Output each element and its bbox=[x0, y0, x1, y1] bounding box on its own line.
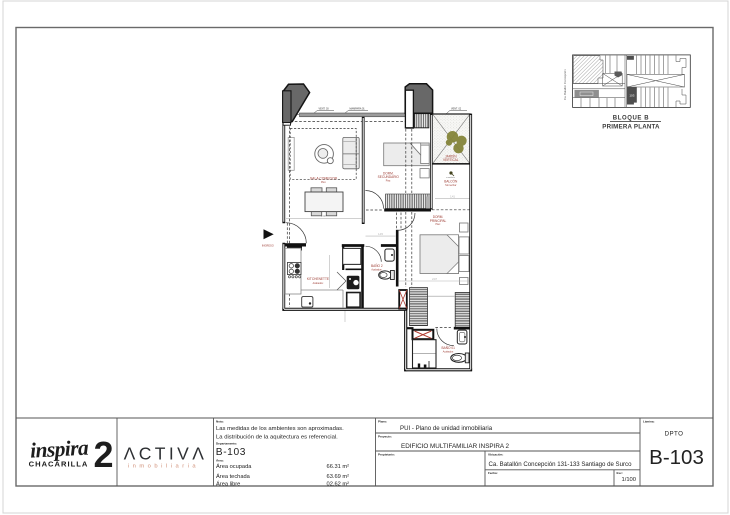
svg-text:Fecha:: Fecha: bbox=[488, 471, 498, 475]
svg-text:INGRESO: INGRESO bbox=[262, 244, 274, 248]
svg-text:Ca. Batallón Concepción: Ca. Batallón Concepción bbox=[563, 69, 567, 100]
svg-text:Proyecto:: Proyecto: bbox=[378, 435, 392, 439]
svg-text:VENT. 02: VENT. 02 bbox=[451, 108, 462, 111]
svg-text:VENT. 03: VENT. 03 bbox=[319, 108, 330, 111]
svg-text:Las medidas de los ambientes s: Las medidas de los ambientes son aproxim… bbox=[216, 426, 344, 432]
svg-text:BALCÓN: BALCÓN bbox=[444, 179, 458, 184]
svg-text:Plano:: Plano: bbox=[378, 420, 387, 424]
svg-text:BLOQUE B: BLOQUE B bbox=[613, 115, 650, 121]
svg-text:Piso:: Piso: bbox=[321, 182, 326, 184]
svg-text:02.62 m²: 02.62 m² bbox=[327, 481, 350, 487]
svg-text:CHACARILLA: CHACARILLA bbox=[29, 460, 89, 469]
svg-text:MAMPARA 01: MAMPARA 01 bbox=[350, 108, 366, 111]
svg-text:PRIMERA PLANTA: PRIMERA PLANTA bbox=[602, 123, 660, 130]
svg-text:Área:: Área: bbox=[216, 458, 224, 463]
svg-text:1.41: 1.41 bbox=[450, 197, 455, 199]
svg-text:1/100: 1/100 bbox=[621, 477, 636, 483]
svg-text:Lámina:: Lámina: bbox=[643, 420, 655, 424]
svg-text:La distribución de la aquitect: La distribución de la aquitectura es ref… bbox=[216, 435, 338, 441]
svg-text:VERTICAL: VERTICAL bbox=[443, 158, 459, 162]
svg-text:2: 2 bbox=[93, 434, 113, 475]
svg-text:Ca. Batallón Concepción 131-13: Ca. Batallón Concepción 131-133 Santiago… bbox=[489, 461, 633, 468]
svg-text:Ubicación:: Ubicación: bbox=[488, 453, 503, 457]
svg-text:63.69 m²: 63.69 m² bbox=[327, 474, 350, 480]
svg-text:Sin techar: Sin techar bbox=[445, 184, 456, 187]
svg-text:Área techada: Área techada bbox=[216, 473, 251, 480]
svg-text:PRINCIPAL: PRINCIPAL bbox=[430, 219, 447, 223]
svg-text:2.47: 2.47 bbox=[432, 279, 437, 281]
svg-text:Departamento:: Departamento: bbox=[216, 442, 237, 446]
svg-text:Acabados:: Acabados: bbox=[443, 350, 454, 353]
svg-text:Esc:: Esc: bbox=[617, 471, 623, 475]
svg-text:SALA COMEDOR: SALA COMEDOR bbox=[310, 177, 338, 181]
svg-text:BAÑO 01: BAÑO 01 bbox=[441, 345, 455, 350]
svg-text:B-103: B-103 bbox=[216, 447, 246, 458]
svg-text:KITCHENETTE: KITCHENETTE bbox=[307, 277, 329, 281]
svg-text:Piso:: Piso: bbox=[386, 181, 391, 183]
svg-text:inmobiliaria: inmobiliaria bbox=[128, 464, 199, 470]
svg-text:BAÑO 2: BAÑO 2 bbox=[371, 263, 383, 268]
svg-text:DPTO: DPTO bbox=[665, 431, 684, 438]
svg-text:66.31 m²: 66.31 m² bbox=[327, 464, 350, 470]
svg-text:ΛCTIVΛ: ΛCTIVΛ bbox=[124, 444, 208, 464]
svg-text:Área libre: Área libre bbox=[216, 480, 240, 487]
svg-text:Piso:: Piso: bbox=[435, 224, 440, 226]
svg-text:EDIFICIO MULTIFAMILIAR INSPIRA: EDIFICIO MULTIFAMILIAR INSPIRA 2 bbox=[401, 443, 509, 450]
svg-text:B-103: B-103 bbox=[649, 446, 704, 469]
svg-text:Nota:: Nota: bbox=[216, 420, 224, 424]
svg-text:Área ocupada: Área ocupada bbox=[216, 463, 252, 470]
svg-text:103: 103 bbox=[629, 94, 634, 98]
svg-text:Acabados:: Acabados: bbox=[371, 268, 382, 271]
svg-text:SECUNDARIO: SECUNDARIO bbox=[378, 175, 400, 179]
svg-text:PUI - Plano de unidad inmobili: PUI - Plano de unidad inmobiliaria bbox=[400, 425, 493, 432]
svg-text:2.98: 2.98 bbox=[321, 216, 326, 218]
svg-text:1.15: 1.15 bbox=[378, 234, 383, 236]
svg-text:Propietario:: Propietario: bbox=[378, 453, 395, 457]
svg-text:Acabados:: Acabados: bbox=[313, 282, 324, 285]
